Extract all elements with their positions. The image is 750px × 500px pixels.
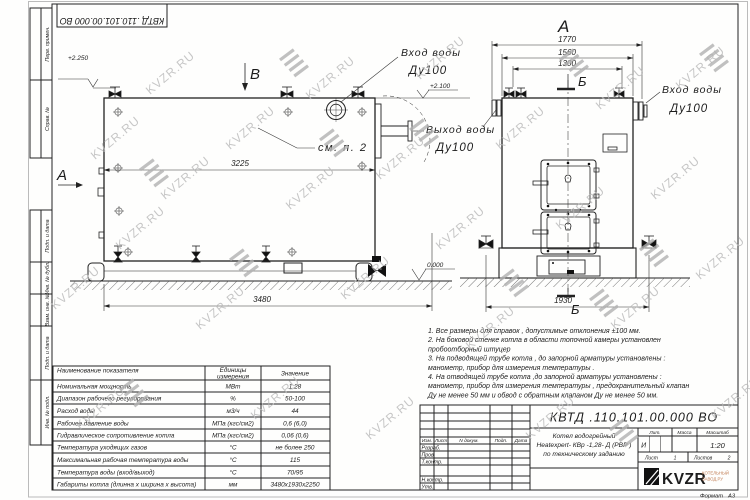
base-valves [479,236,656,248]
logo-sub-2: ЗАВОД.РУ [702,477,723,482]
product-name-line: Котел водогрейный [553,432,616,440]
inlet-label-right-2: Ду100 [668,103,708,115]
dim-overall-length: 3480 [253,295,271,304]
front-flanges [492,100,647,120]
margin-label: Справ. № [45,107,51,131]
note-line: 3. На подводящей трубе котла , до запорн… [428,355,665,363]
elevation-body-top-text: +2.100 [430,83,450,90]
spec-cell: % [230,396,236,403]
drain-valves [114,246,270,262]
note-line: 2. На боковой стенке котла в области топ… [427,336,661,344]
spec-cell: МПа (кгс/см2) [212,421,254,428]
note-line: манометр, прибор для измерения температу… [428,364,595,372]
lit-label: Лит. [648,430,660,436]
ground-left [70,281,452,290]
format-value: А3 [727,494,736,500]
lit-value: И [641,443,647,450]
rev-col: Подп. [495,438,508,444]
inlet-leader-right [646,92,660,103]
spec-cell: 50-100 [285,396,305,403]
view-b-label: В [250,66,260,83]
spec-cell: 44 [291,408,299,415]
elevation-ground: 0.000 [412,262,455,280]
elevation-ground-text: 0.000 [427,262,444,269]
sig-label: Утв. [422,485,434,491]
ash-box [537,256,600,276]
mass-label: Масса [677,430,692,436]
dim-body-length: 3225 [231,159,249,168]
view-a-mark-side: А [56,167,83,188]
sig-label: Н.контр. [422,478,444,484]
outlet-label-1: Выход воды [426,124,495,136]
margin-labels: Перв. примен. Справ. № Подп. и дата Инв.… [45,26,51,428]
sig-label: Разраб. [422,446,441,452]
spec-cell: мм [229,482,238,489]
kvzr-logo: KVZR КОТЕЛЬНЫЙ ЗАВОД.РУ [644,468,729,488]
view-a-label-side: А [56,167,67,184]
product-name-line: по техническому заданию [543,450,625,458]
drawing-sheet: Перв. примен. Справ. № Подп. и дата Инв.… [0,0,750,500]
product-name-line: Heatexpert- КВр -1,28- Д (РВР ) [536,442,631,449]
margin-label: Перв. примен. [45,26,51,61]
watermark-text: KVZR.RU [708,373,750,422]
spec-cell: °С [229,444,237,452]
rev-col: Дата [514,438,528,444]
section-b-bottom-label: Б [571,302,580,317]
watermark-glyph [588,287,619,318]
watermark-text: KVZR.RU [223,103,278,152]
outlet-label-2: Ду100 [434,142,474,154]
doc-number: КВТД .110.101.00.000 ВО [550,411,718,425]
watermark-text: KVZR.RU [648,153,703,202]
margin-label: Взам. инв. № [45,293,51,326]
watermark-text: KVZR.RU [193,283,248,332]
sheets-label: Листов [693,456,713,462]
title-block: КВТД .110.101.00.000 ВО Изм. Лист N доку… [420,405,738,500]
rev-col: Изм. [422,438,432,444]
note-line: 1. Все размеры для справок , допустимые … [428,327,641,335]
rev-col: N докум. [459,438,478,444]
spec-cell: 70/95 [287,470,303,477]
watermark-text: KVZR.RU [113,203,168,252]
watermark-text: KVZR.RU [283,163,338,212]
inlet-flange-circle [324,98,348,122]
spec-cell: м3/ч [226,408,240,415]
sig-label: Т.контр. [422,460,443,466]
sheet-label: Лист [644,456,658,462]
margin-label: Подп. и дата [45,336,51,369]
dim-flange-span: 1770 [558,35,576,44]
watermark-glyph [278,47,309,78]
sheet-value: 1 [674,456,677,462]
watermark-glyph [228,247,259,278]
spec-cell: 0,6 (6,0) [283,421,307,428]
spec-cell: МВт [226,384,242,391]
spec-cell: Температура уходящих газов [57,444,148,452]
dim-base-span: 1930 [554,296,572,305]
margin-label: Инв. № дубл. [45,262,51,295]
section-b-top-label: Б [578,74,587,89]
watermark-text: KVZR.RU [363,393,418,442]
watermark-text: KVZR.RU [693,233,748,282]
sig-label: Пров. [422,453,436,459]
spec-cell: 115 [290,457,301,464]
inlet-label-right-1: Вход воды [662,84,722,96]
watermark-glyph [138,157,169,188]
top-stamp-doc-number: КВТД .110.101.00.000 ВО [60,16,165,26]
sheets-value: 2 [727,456,731,462]
spec-cell: Максимальная рабочая температура воды [57,456,189,464]
drawing-canvas: Перв. примен. Справ. № Подп. и дата Инв.… [0,0,750,500]
spec-cell: 0,06 (0,6) [281,433,308,440]
logo-text: KVZR [662,471,706,488]
note-line: манометр, прибор для измерения температу… [428,382,689,390]
spec-cell: не более 250 [275,444,314,452]
side-stubs [98,168,104,238]
spec-cell: °С [229,456,237,464]
spec-cell: Габариты котла (длинна х ширина х высота… [57,481,196,489]
spec-header-units-2: измерения [217,374,250,381]
logo-sub-1: КОТЕЛЬНЫЙ [702,471,729,476]
control-panel [603,134,627,152]
format-label: Формат [700,494,723,500]
scale-value: 1:20 [710,441,725,450]
spec-header-name: Наименование показателя [57,368,139,375]
margin-label: Подп. и дата [45,219,51,252]
spec-cell: Гидравлическое сопротивление котла [57,432,175,440]
view-b-mark: В [242,63,260,91]
callout-leader [258,128,315,148]
spec-cell: Температура воды (вход/выход) [57,469,155,477]
margin-label: Инв. № подл. [45,396,51,429]
spec-cell: 3480х1930х2250 [270,482,319,489]
spec-cell: МПа (кгс/см2) [212,433,254,440]
watermark-text: KVZR.RU [303,53,358,102]
watermark-text: KVZR.RU [143,48,198,97]
skid-base [88,261,375,281]
watermark-text: KVZR.RU [553,183,608,232]
elevation-vent-top-text: +2.250 [68,55,88,62]
note-line: 4. На отводящей трубе котла ,до запорной… [428,373,662,381]
view-a-label-top: А [557,17,569,36]
elevation-body-top: +2.100 [375,83,470,98]
watermark-text: KVZR.RU [88,113,143,162]
spec-cell: °С [229,469,237,477]
section-b-top: Б [557,74,587,90]
scale-label: Масштаб [706,430,729,436]
note-line: Ду не менее 50 мм и обвод с обратным кла… [427,391,658,399]
elevation-vent-top: +2.250 [58,55,116,88]
rev-col: Лист [434,438,447,444]
